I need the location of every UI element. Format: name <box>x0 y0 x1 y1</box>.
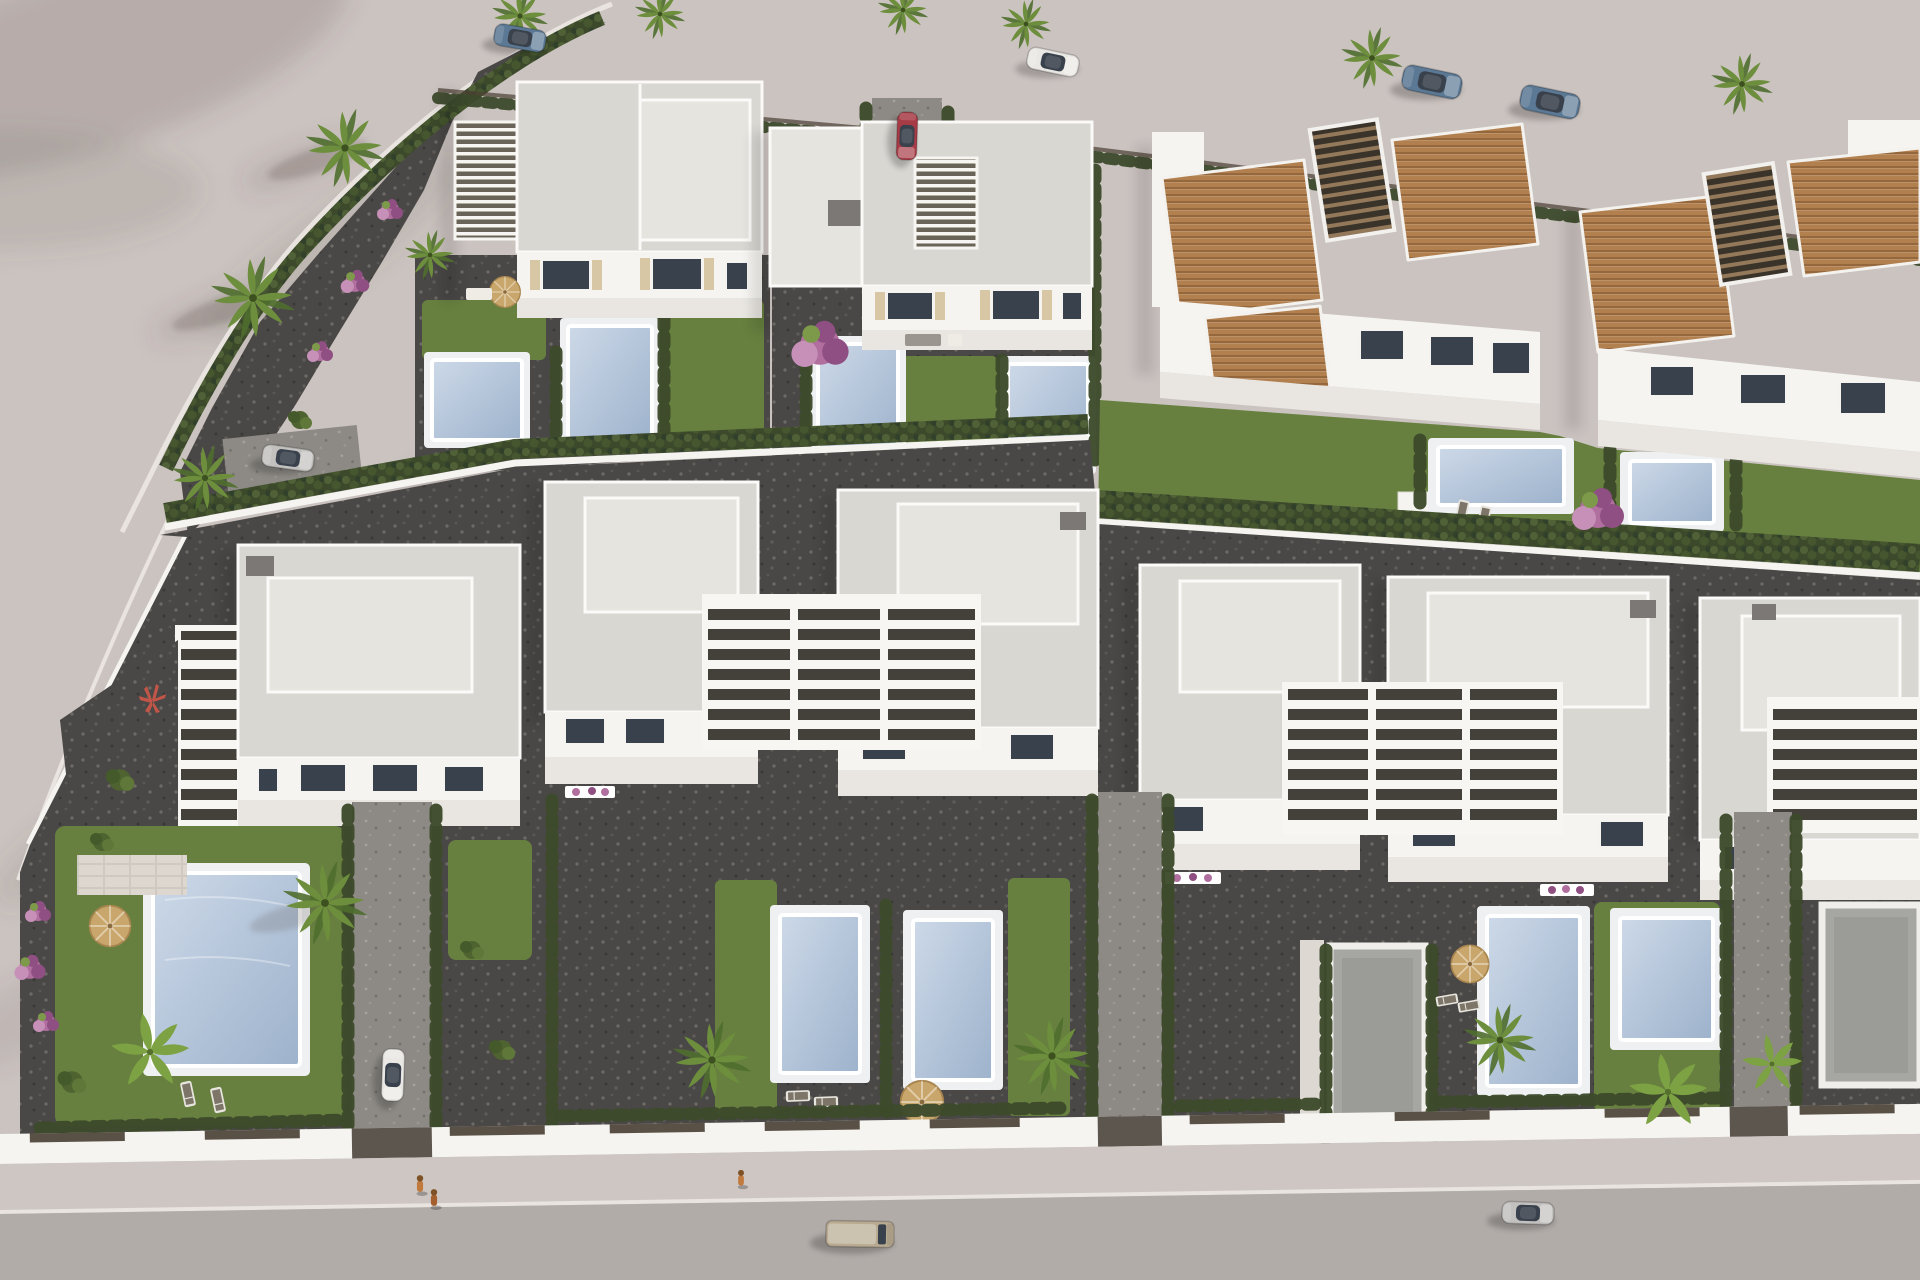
terrace <box>517 298 762 318</box>
window <box>652 258 702 290</box>
terrace <box>838 770 1098 796</box>
street-front <box>0 1103 1920 1280</box>
render-stage <box>0 0 1920 1280</box>
front-hedge <box>40 1120 345 1128</box>
roof-ac-unit <box>1060 512 1086 530</box>
lawn-m1 <box>715 880 777 1116</box>
pool-5 <box>1428 438 1574 514</box>
terrace <box>1388 857 1668 882</box>
lawn-m2 <box>1008 878 1070 1116</box>
pool-empty-2 <box>1822 905 1920 1085</box>
pool-1 <box>424 352 530 448</box>
parasol <box>1451 945 1488 982</box>
stair-pergola <box>1310 119 1395 240</box>
roof-ac-unit <box>828 200 862 226</box>
upper-roof <box>1180 581 1340 692</box>
roof-ac-unit <box>246 556 274 576</box>
beam-pergola <box>178 628 240 858</box>
window <box>1010 734 1054 760</box>
window <box>1650 366 1694 396</box>
front-hedge <box>1180 1104 1320 1106</box>
tile-roof <box>1392 124 1538 260</box>
pool-9 <box>903 910 1003 1090</box>
roof-ac-unit <box>1752 604 1776 620</box>
rooftop-pergola <box>455 122 517 239</box>
door <box>258 768 278 792</box>
pool-2 <box>560 318 660 452</box>
parasol <box>90 906 131 947</box>
garden-a-lawn2 <box>656 300 764 450</box>
front-hedge <box>890 1108 1060 1111</box>
villa-bottom-3 <box>1124 565 1668 896</box>
gate <box>1730 1106 1788 1137</box>
gate <box>1098 1116 1162 1147</box>
outdoor-table <box>948 334 962 346</box>
outdoor-sofa <box>466 288 492 300</box>
window <box>887 292 933 320</box>
pool-6 <box>1620 452 1724 532</box>
window <box>1360 330 1404 360</box>
parasol <box>490 277 521 308</box>
tile-roof <box>1162 160 1322 318</box>
driveway-mid <box>1098 792 1162 1144</box>
front-hedge <box>562 1111 878 1116</box>
stair-pergola <box>1704 163 1791 285</box>
window <box>444 766 484 792</box>
window <box>625 718 665 744</box>
rooftop-pergola <box>915 158 977 248</box>
terrace <box>1700 880 1920 900</box>
pool-8 <box>770 905 870 1083</box>
upper-roof <box>640 100 750 240</box>
window <box>1600 821 1644 847</box>
lawn-small <box>448 840 532 960</box>
terrace <box>545 757 758 784</box>
central-beam-court <box>705 597 978 747</box>
door <box>1062 292 1082 320</box>
aerial-villa-render <box>0 0 1920 1280</box>
window <box>565 718 605 744</box>
terrace <box>862 330 1092 350</box>
paver-path <box>77 855 187 895</box>
lounger <box>786 1090 811 1102</box>
window <box>1492 342 1530 374</box>
pool-11 <box>1610 908 1723 1050</box>
window <box>542 260 590 290</box>
window <box>372 764 418 792</box>
tile-roof <box>1788 148 1920 276</box>
upper-roof <box>268 578 472 692</box>
beam-court <box>1770 700 1920 830</box>
window <box>1840 382 1886 414</box>
window <box>992 290 1040 320</box>
door <box>726 262 748 290</box>
gate <box>352 1127 432 1158</box>
roof-ac-unit <box>1630 600 1656 618</box>
outdoor-sofa <box>905 334 941 346</box>
window <box>1740 374 1786 404</box>
driveway-right <box>1734 812 1792 1142</box>
window <box>1430 336 1474 366</box>
window <box>300 764 346 792</box>
central-beam-court <box>1285 685 1560 832</box>
